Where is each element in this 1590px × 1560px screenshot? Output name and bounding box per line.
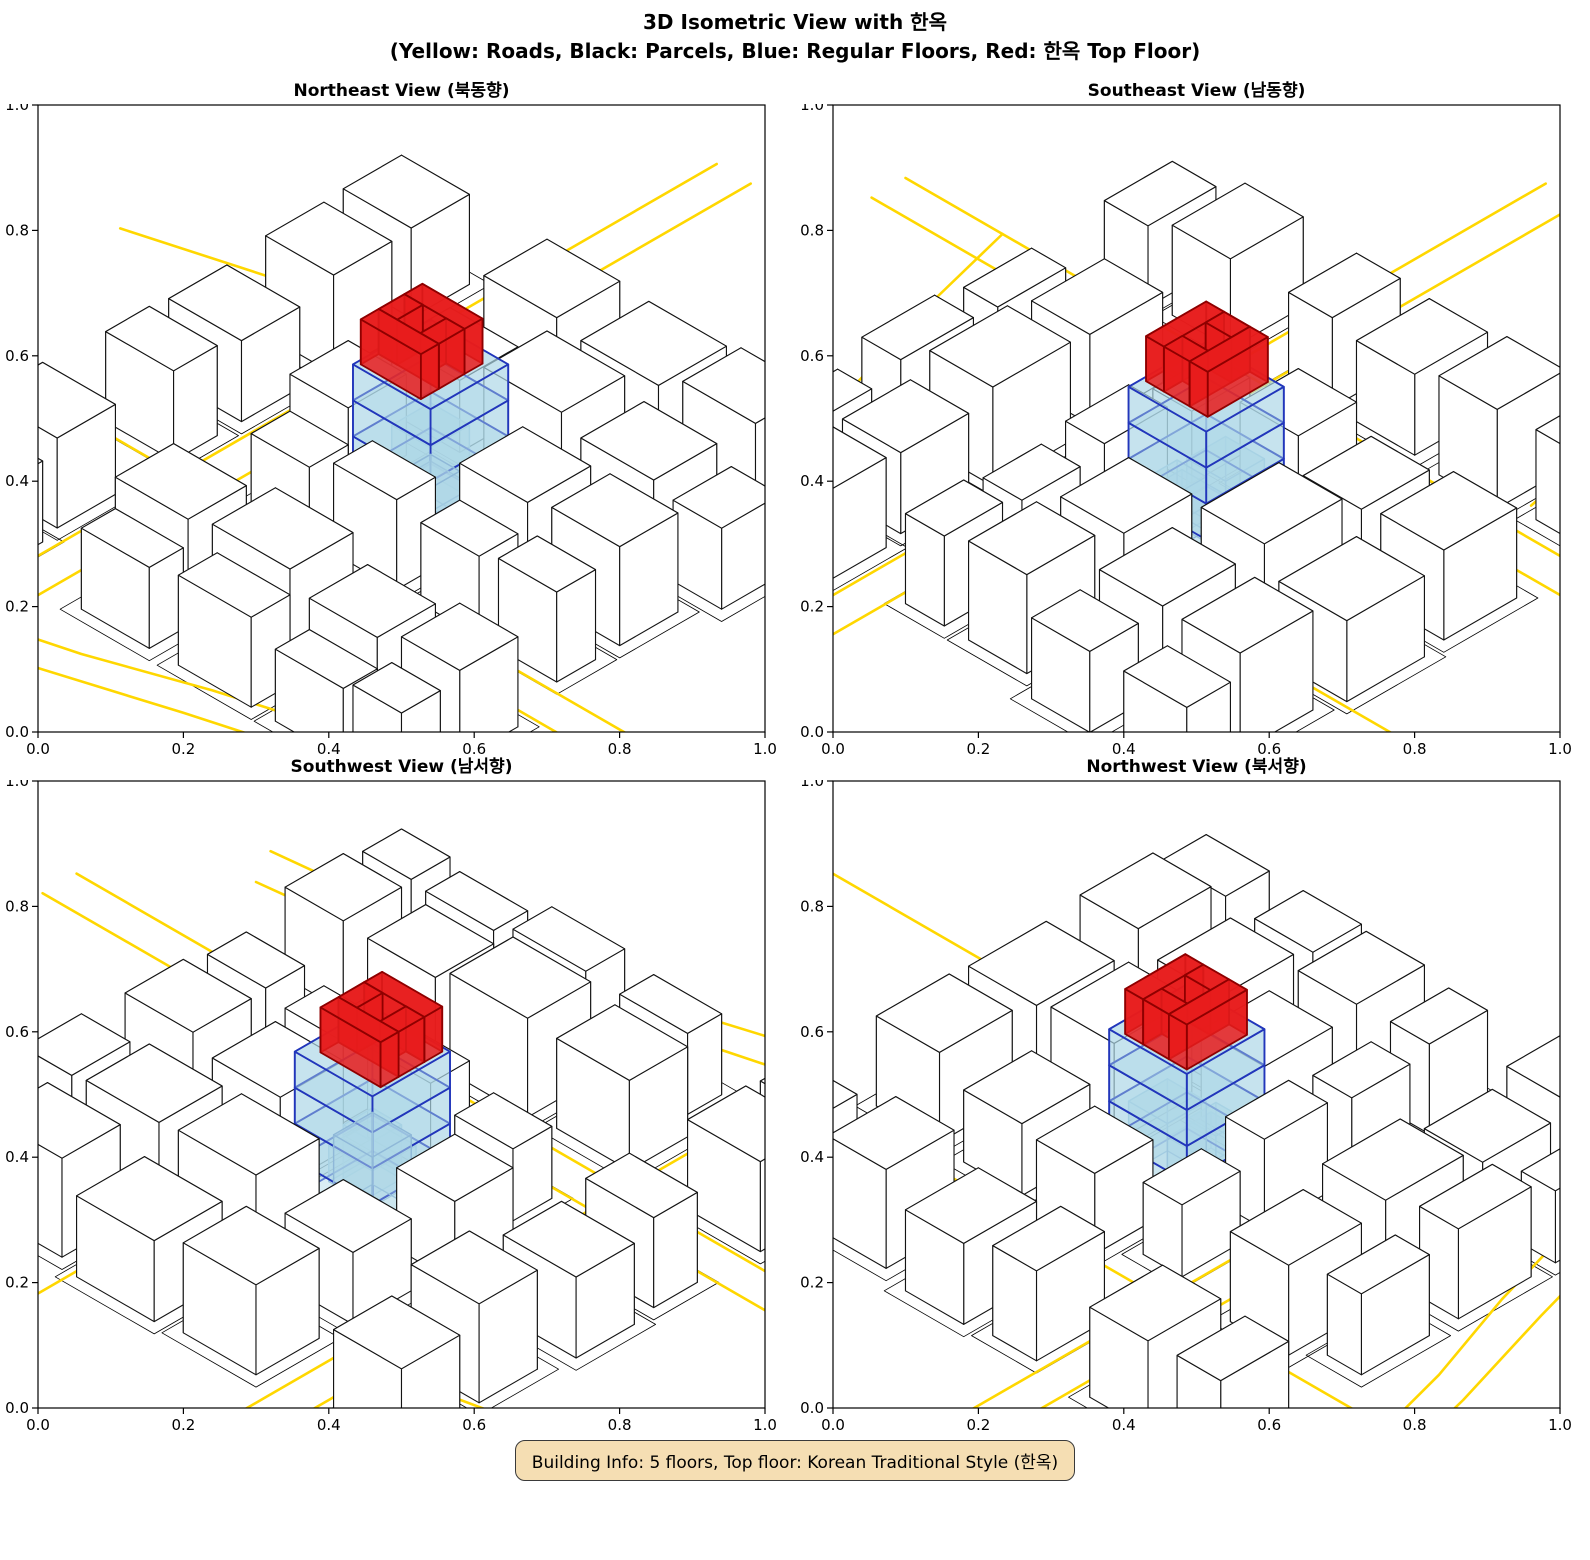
svg-text:0.2: 0.2 [171,740,195,754]
figure-title-line2: (Yellow: Roads, Black: Parcels, Blue: Re… [0,37,1590,66]
svg-text:0.8: 0.8 [608,1416,632,1430]
svg-text:0.2: 0.2 [966,740,990,754]
svg-text:0.8: 0.8 [608,740,632,754]
subplot-canvas-southeast: 0.00.00.20.20.40.40.60.60.80.81.01.0 [795,104,1590,754]
subplot-canvas-northwest: 0.00.00.20.20.40.40.60.60.80.81.01.0 [795,780,1590,1430]
svg-text:1.0: 1.0 [753,1416,777,1430]
svg-text:0.2: 0.2 [800,598,824,616]
svg-text:1.0: 1.0 [800,104,824,114]
subplot-grid: Northeast View (북동향) 0.00.00.20.20.40.40… [0,78,1590,1430]
subplot-canvas-southwest: 0.00.00.20.20.40.40.60.60.80.81.01.0 [0,780,795,1430]
svg-text:0.0: 0.0 [800,1399,824,1417]
subplot-southwest: Southwest View (남서향) 0.00.00.20.20.40.40… [0,754,795,1430]
subplot-title-southeast: Southeast View (남동향) [833,78,1560,104]
svg-text:0.4: 0.4 [800,472,824,490]
svg-text:0.2: 0.2 [5,1274,29,1292]
svg-text:0.6: 0.6 [462,1416,486,1430]
svg-text:0.4: 0.4 [317,1416,341,1430]
svg-text:1.0: 1.0 [800,780,824,790]
svg-text:0.4: 0.4 [1112,740,1136,754]
svg-text:0.4: 0.4 [5,472,29,490]
svg-text:0.2: 0.2 [5,598,29,616]
figure-title-line1: 3D Isometric View with 한옥 [0,8,1590,37]
svg-text:0.6: 0.6 [5,347,29,365]
svg-text:0.2: 0.2 [800,1274,824,1292]
subplot-title-southwest: Southwest View (남서향) [38,754,765,780]
subplot-canvas-northeast: 0.00.00.20.20.40.40.60.60.80.81.01.0 [0,104,795,754]
svg-text:0.2: 0.2 [171,1416,195,1430]
svg-text:0.6: 0.6 [462,740,486,754]
subplot-southeast: Southeast View (남동향) 0.00.00.20.20.40.40… [795,78,1590,754]
subplot-northwest: Northwest View (북서향) 0.00.00.20.20.40.40… [795,754,1590,1430]
svg-text:0.8: 0.8 [800,221,824,239]
subplot-northeast: Northeast View (북동향) 0.00.00.20.20.40.40… [0,78,795,754]
svg-text:0.6: 0.6 [1257,1416,1281,1430]
svg-text:0.0: 0.0 [800,723,824,741]
svg-text:0.8: 0.8 [5,221,29,239]
building-info-badge: Building Info: 5 floors, Top floor: Kore… [515,1440,1075,1481]
svg-text:0.0: 0.0 [5,1399,29,1417]
svg-text:0.0: 0.0 [821,1416,845,1430]
svg-text:0.8: 0.8 [5,897,29,915]
svg-text:0.4: 0.4 [1112,1416,1136,1430]
svg-text:0.0: 0.0 [5,723,29,741]
svg-text:0.8: 0.8 [1403,1416,1427,1430]
svg-text:0.0: 0.0 [26,740,50,754]
svg-text:1.0: 1.0 [5,104,29,114]
svg-text:0.6: 0.6 [800,1023,824,1041]
svg-text:0.4: 0.4 [5,1148,29,1166]
svg-text:0.0: 0.0 [821,740,845,754]
svg-text:0.4: 0.4 [800,1148,824,1166]
svg-text:0.8: 0.8 [1403,740,1427,754]
svg-text:0.6: 0.6 [800,347,824,365]
subplot-title-northwest: Northwest View (북서향) [833,754,1560,780]
svg-text:0.6: 0.6 [5,1023,29,1041]
svg-text:0.6: 0.6 [1257,740,1281,754]
svg-text:0.8: 0.8 [800,897,824,915]
svg-text:0.2: 0.2 [966,1416,990,1430]
svg-text:0.4: 0.4 [317,740,341,754]
subplot-title-northeast: Northeast View (북동향) [38,78,765,104]
svg-text:0.0: 0.0 [26,1416,50,1430]
svg-text:1.0: 1.0 [1548,740,1572,754]
svg-text:1.0: 1.0 [5,780,29,790]
footer: Building Info: 5 floors, Top floor: Kore… [0,1440,1590,1495]
svg-text:1.0: 1.0 [1548,1416,1572,1430]
svg-text:1.0: 1.0 [753,740,777,754]
figure-title: 3D Isometric View with 한옥 (Yellow: Roads… [0,8,1590,66]
